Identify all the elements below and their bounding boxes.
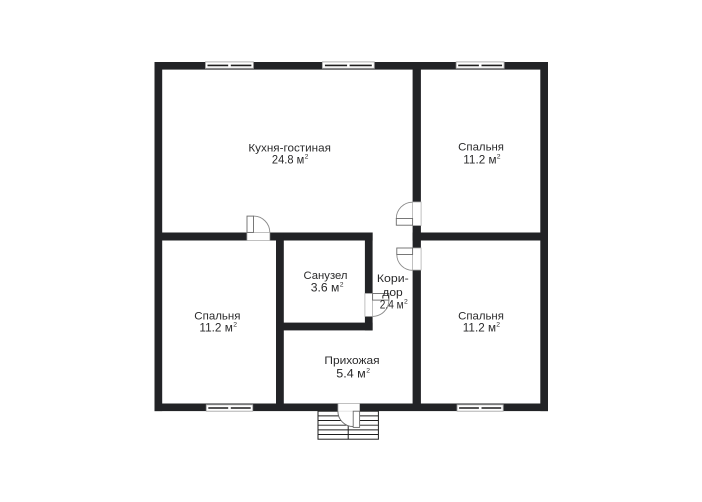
svg-text:2.4 м: 2.4 м <box>380 298 404 312</box>
svg-text:5.4 м: 5.4 м <box>336 367 366 381</box>
svg-text:2: 2 <box>496 322 500 329</box>
svg-text:2: 2 <box>340 282 344 289</box>
svg-text:11.2 м: 11.2 м <box>463 321 496 335</box>
svg-text:24.8 м: 24.8 м <box>272 152 304 166</box>
svg-text:11.2 м: 11.2 м <box>199 321 233 335</box>
svg-text:3.6 м: 3.6 м <box>311 281 340 295</box>
svg-text:Кори-: Кори- <box>377 273 409 285</box>
svg-text:2: 2 <box>305 153 309 160</box>
svg-text:Прихожая: Прихожая <box>324 355 379 367</box>
svg-text:2: 2 <box>366 368 370 375</box>
svg-text:2: 2 <box>404 299 408 306</box>
svg-text:2: 2 <box>233 322 237 329</box>
svg-text:2: 2 <box>497 153 501 160</box>
svg-text:11.2 м: 11.2 м <box>463 152 496 166</box>
